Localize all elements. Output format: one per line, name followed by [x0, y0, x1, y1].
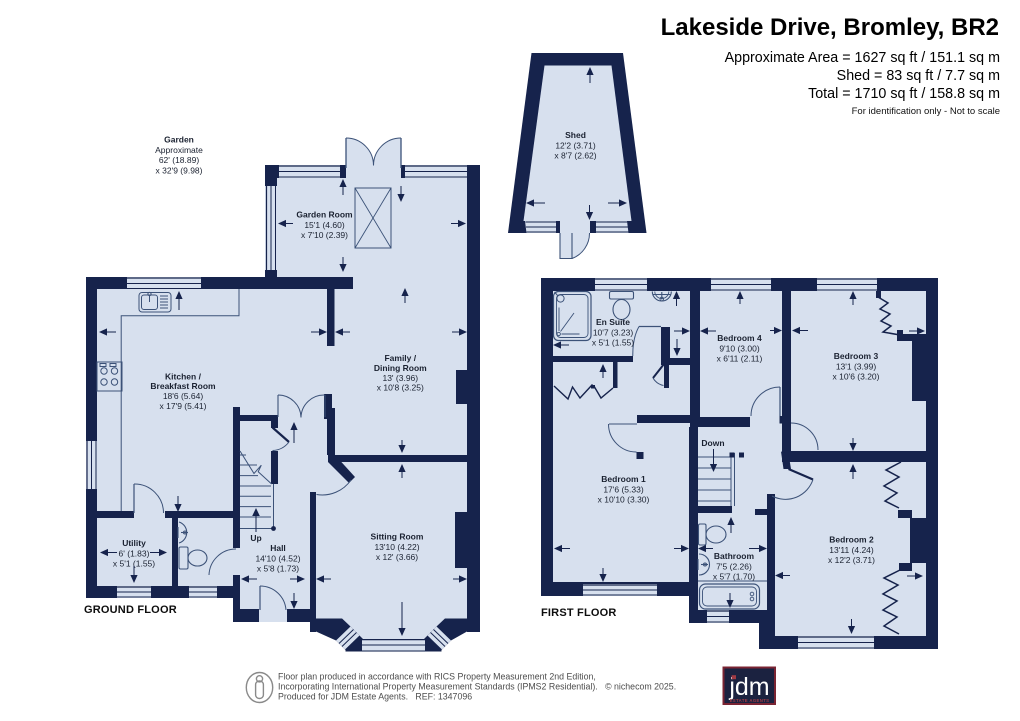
svg-text:Lakeside Drive, Bromley, BR2: Lakeside Drive, Bromley, BR2	[661, 14, 999, 41]
svg-text:7'5 (2.26): 7'5 (2.26)	[716, 561, 752, 571]
svg-text:x 5'8 (1.73): x 5'8 (1.73)	[257, 564, 299, 574]
svg-text:Down: Down	[701, 438, 724, 448]
svg-text:6' (1.83): 6' (1.83)	[119, 548, 150, 558]
svg-text:13' (3.96): 13' (3.96)	[382, 373, 418, 383]
svg-text:Family /: Family /	[384, 353, 416, 363]
svg-text:13'10 (4.22): 13'10 (4.22)	[374, 542, 419, 552]
svg-text:Bathroom: Bathroom	[714, 551, 755, 561]
svg-text:GROUND FLOOR: GROUND FLOOR	[84, 604, 177, 616]
svg-text:Bedroom 4: Bedroom 4	[717, 333, 762, 343]
svg-text:Bedroom 3: Bedroom 3	[834, 351, 879, 361]
svg-text:Approximate: Approximate	[155, 145, 203, 155]
svg-text:En Suite: En Suite	[596, 317, 630, 327]
svg-text:13'1 (3.99): 13'1 (3.99)	[836, 361, 877, 371]
svg-text:x 17'9 (5.41): x 17'9 (5.41)	[160, 401, 207, 411]
svg-text:Garden Room: Garden Room	[296, 210, 353, 220]
svg-text:18'6 (5.64): 18'6 (5.64)	[163, 391, 204, 401]
svg-text:x 5'1 (1.55): x 5'1 (1.55)	[592, 338, 634, 348]
svg-text:Garden: Garden	[164, 135, 194, 145]
svg-text:Bedroom 2: Bedroom 2	[829, 535, 874, 545]
svg-text:Total = 1710 sq ft / 158.8 sq: Total = 1710 sq ft / 158.8 sq m	[808, 86, 1000, 102]
svg-text:Shed = 83 sq ft / 7.7 sq m: Shed = 83 sq ft / 7.7 sq m	[837, 68, 1000, 84]
svg-text:x 6'11 (2.11): x 6'11 (2.11)	[717, 354, 763, 364]
svg-text:Hall: Hall	[270, 543, 286, 553]
svg-text:FIRST FLOOR: FIRST FLOOR	[541, 607, 617, 619]
svg-text:Up: Up	[250, 533, 261, 543]
svg-text:9'10 (3.00): 9'10 (3.00)	[719, 343, 760, 353]
svg-text:62' (18.89): 62' (18.89)	[159, 155, 200, 165]
svg-text:Bedroom 1: Bedroom 1	[601, 474, 646, 484]
svg-text:x 10'8 (3.25): x 10'8 (3.25)	[377, 383, 424, 393]
svg-text:x 12' (3.66): x 12' (3.66)	[376, 552, 418, 562]
svg-text:Incorporating International Pr: Incorporating International Property Mea…	[278, 682, 676, 692]
svg-text:ESTATE AGENTS: ESTATE AGENTS	[730, 698, 770, 703]
svg-text:x 7'10 (2.39): x 7'10 (2.39)	[301, 230, 348, 240]
svg-text:Breakfast Room: Breakfast Room	[150, 381, 216, 391]
svg-text:Dining Room: Dining Room	[374, 363, 427, 373]
svg-text:Kitchen /: Kitchen /	[165, 371, 202, 381]
svg-text:For identification only - Not: For identification only - Not to scale	[852, 106, 1000, 117]
svg-text:x 12'2 (3.71): x 12'2 (3.71)	[828, 555, 875, 565]
svg-text:x 10'6 (3.20): x 10'6 (3.20)	[833, 372, 880, 382]
svg-text:Sitting Room: Sitting Room	[371, 532, 424, 542]
svg-text:Produced for JDM Estate Agents: Produced for JDM Estate Agents. REF: 134…	[278, 692, 472, 702]
svg-text:10'7 (3.23): 10'7 (3.23)	[593, 327, 634, 337]
svg-text:x 10'10 (3.30): x 10'10 (3.30)	[598, 495, 650, 505]
svg-text:Shed: Shed	[565, 130, 586, 140]
svg-text:x 8'7 (2.62): x 8'7 (2.62)	[554, 151, 596, 161]
svg-text:x 5'7 (1.70): x 5'7 (1.70)	[713, 572, 755, 582]
svg-text:Utility: Utility	[122, 538, 146, 548]
svg-text:17'6 (5.33): 17'6 (5.33)	[603, 484, 644, 494]
svg-text:x 32'9 (9.98): x 32'9 (9.98)	[156, 165, 203, 175]
svg-text:Floor plan produced in accorda: Floor plan produced in accordance with R…	[278, 672, 596, 682]
svg-text:15'1 (4.60): 15'1 (4.60)	[304, 220, 345, 230]
svg-text:12'2 (3.71): 12'2 (3.71)	[555, 140, 596, 150]
svg-text:Approximate Area = 1627 sq ft: Approximate Area = 1627 sq ft / 151.1 sq…	[725, 50, 1000, 66]
svg-text:14'10 (4.52): 14'10 (4.52)	[255, 553, 300, 563]
svg-text:13'11 (4.24): 13'11 (4.24)	[829, 545, 874, 555]
